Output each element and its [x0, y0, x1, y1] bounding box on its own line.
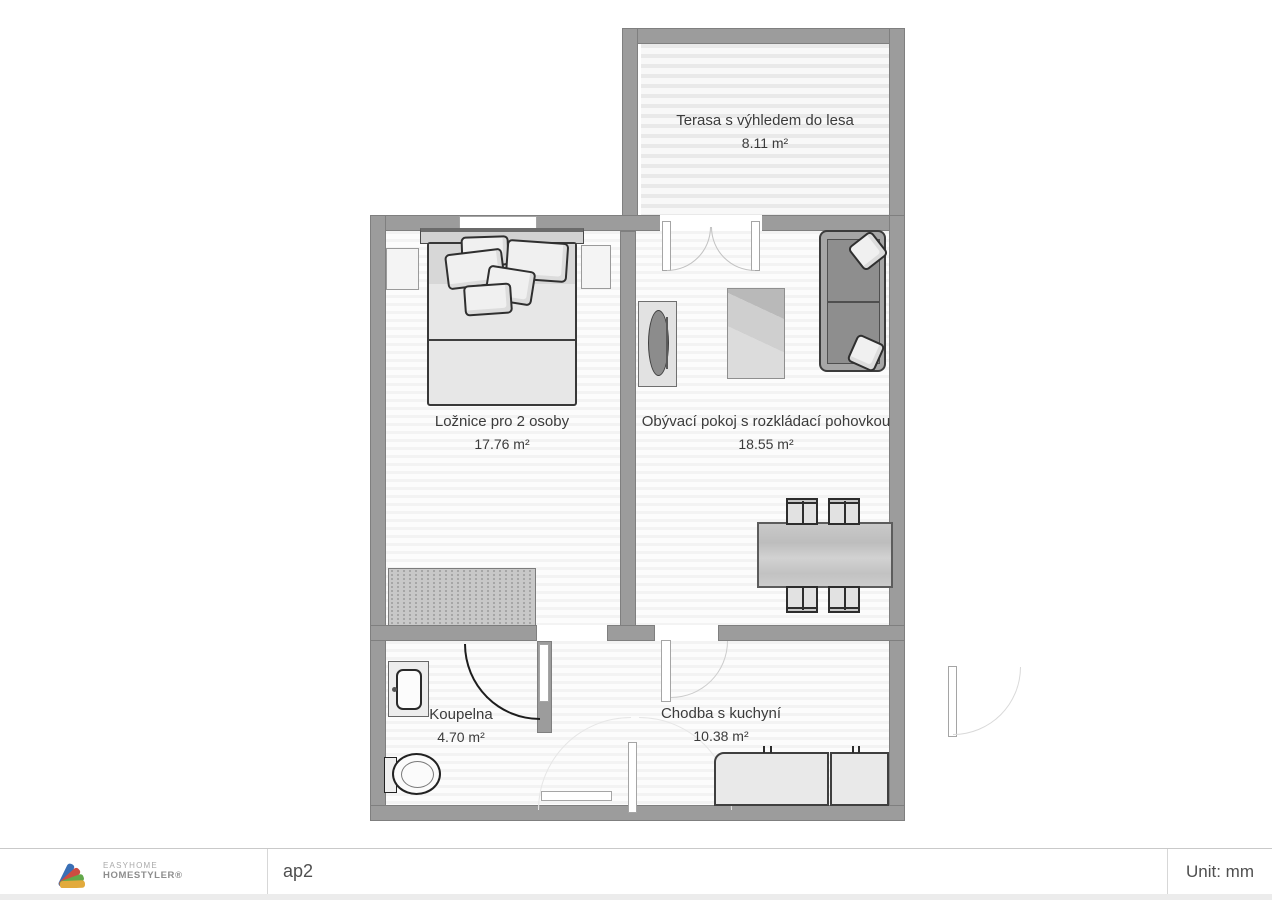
wall-terrace-left	[622, 28, 638, 231]
sink-basin	[396, 669, 422, 710]
wall-main-left	[370, 215, 386, 821]
room-name: Ložnice pro 2 osoby	[435, 411, 569, 433]
room-name: Terasa s výhledem do lesa	[676, 110, 854, 132]
nightstand-right	[581, 245, 611, 289]
tv-stand-line	[666, 317, 668, 369]
dining-chair	[828, 586, 860, 612]
rug	[727, 288, 785, 379]
logo-line2: HOMESTYLER®	[103, 871, 183, 881]
chair-divider	[802, 588, 804, 610]
wall-main-right	[889, 215, 905, 821]
project-name: ap2	[268, 849, 1167, 894]
room-name: Obývací pokoj s rozkládací pohovkou	[642, 411, 890, 433]
counter-faucet-tick	[852, 746, 854, 753]
wall-terrace-top	[622, 28, 905, 44]
sink-faucet	[392, 687, 397, 692]
wall-main-bottom	[370, 805, 905, 821]
wall-bedroom-bathroom	[370, 625, 537, 641]
chair-divider	[844, 588, 846, 610]
floor-plan-canvas: Terasa s výhledem do lesa 8.11 m² Ložnic…	[0, 0, 1272, 848]
toilet-rim	[401, 761, 434, 788]
wall-hallway-junction	[607, 625, 655, 641]
chair-divider	[844, 501, 846, 523]
room-label-hallway: Chodba s kuchyní 10.38 m²	[661, 703, 781, 747]
room-label-bedroom: Ložnice pro 2 osoby 17.76 m²	[435, 411, 569, 455]
wall-living-hallway	[718, 625, 905, 641]
easyhome-homestyler-logo-icon	[55, 856, 95, 888]
footer-logo-cell: EASYHOME HOMESTYLER®	[0, 849, 268, 894]
room-label-bathroom: Koupelna 4.70 m²	[429, 704, 492, 748]
counter-faucet-tick	[858, 746, 860, 753]
bottom-edge-strip	[0, 894, 1272, 900]
room-name: Chodba s kuchyní	[661, 703, 781, 725]
kitchen-counter	[830, 752, 889, 806]
counter-faucet-tick	[763, 746, 765, 753]
floor-plan-export: Terasa s výhledem do lesa 8.11 m² Ložnic…	[0, 0, 1272, 900]
room-area: 10.38 m²	[661, 725, 781, 747]
nightstand-left	[386, 248, 419, 290]
room-area: 17.76 m²	[435, 433, 569, 455]
room-area: 8.11 m²	[676, 132, 854, 154]
dining-chair	[828, 499, 860, 525]
dresser	[388, 568, 536, 626]
bathroom-door-leaf	[539, 644, 549, 702]
dining-chair	[786, 586, 818, 612]
room-name: Koupelna	[429, 704, 492, 726]
unit-label: Unit: mm	[1167, 849, 1272, 894]
room-label-terrace: Terasa s výhledem do lesa 8.11 m²	[676, 110, 854, 154]
room-area: 18.55 m²	[642, 433, 890, 455]
footer-bar: EASYHOME HOMESTYLER® ap2 Unit: mm	[0, 848, 1272, 895]
wall-bedroom-living-divider	[620, 231, 636, 641]
chair-divider	[802, 501, 804, 523]
kitchen-counter	[714, 752, 829, 806]
wall-terrace-right	[889, 28, 905, 231]
room-area: 4.70 m²	[429, 726, 492, 748]
bed-blanket-fold-line	[429, 339, 575, 341]
living-hallway-door-leaf	[661, 640, 671, 702]
exterior-door-swing-arc	[953, 667, 1021, 735]
dining-chair	[786, 499, 818, 525]
counter-faucet-tick	[770, 746, 772, 753]
dining-table	[757, 522, 893, 588]
room-label-living: Obývací pokoj s rozkládací pohovkou 18.5…	[642, 411, 890, 455]
logo-wordmark: EASYHOME HOMESTYLER®	[103, 862, 183, 880]
bed-pillow	[463, 282, 513, 316]
